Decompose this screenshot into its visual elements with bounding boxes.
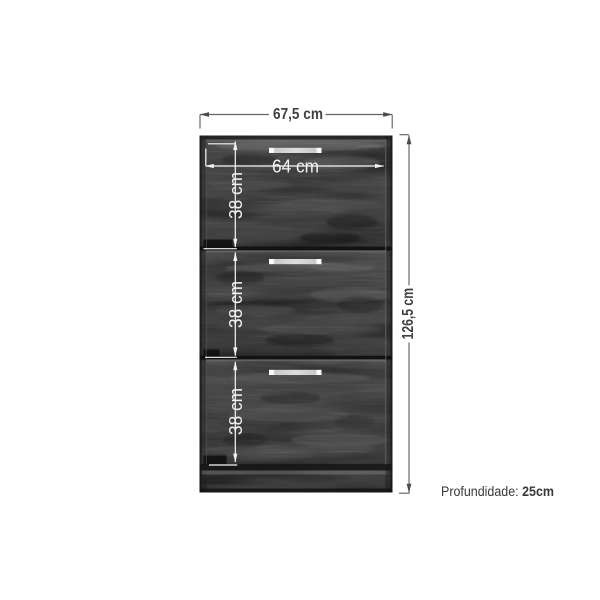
svg-text:38 cm: 38 cm <box>225 388 246 435</box>
svg-text:38 cm: 38 cm <box>225 281 246 328</box>
svg-text:67,5 cm: 67,5 cm <box>273 106 323 123</box>
svg-text:64 cm: 64 cm <box>272 155 319 176</box>
svg-text:38 cm: 38 cm <box>225 172 246 219</box>
svg-text:126,5 cm: 126,5 cm <box>400 288 417 340</box>
svg-text:Profundidade: 25cm: Profundidade: 25cm <box>441 484 554 499</box>
